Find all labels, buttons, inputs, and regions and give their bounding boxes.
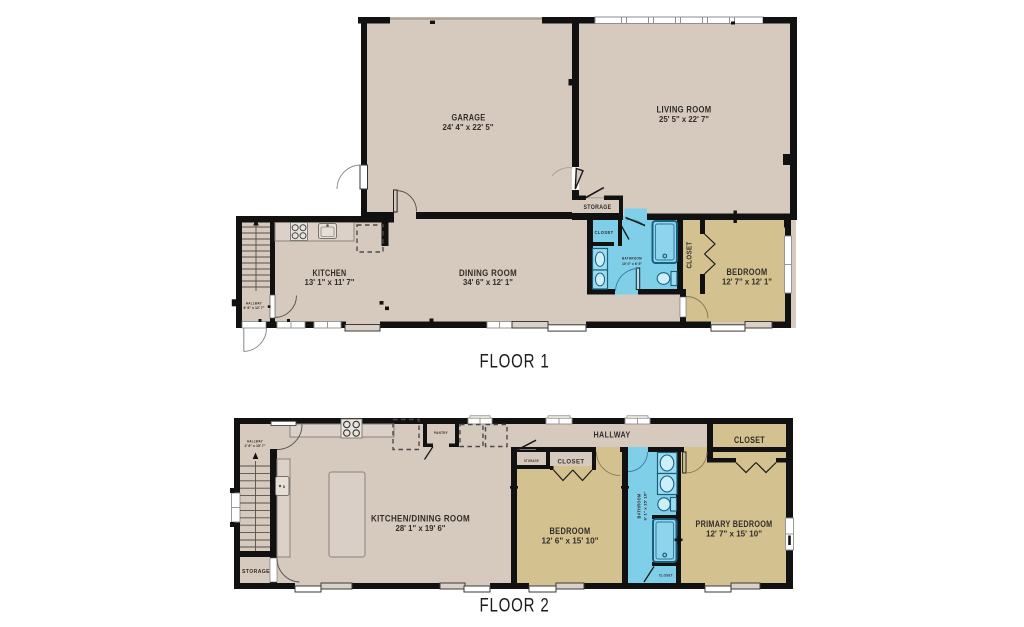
svg-text:6' 1" x 15' 10": 6' 1" x 15' 10" xyxy=(643,491,648,520)
svg-text:PRIMARY BEDROOM: PRIMARY BEDROOM xyxy=(696,519,773,530)
svg-text:DINING ROOM: DINING ROOM xyxy=(459,268,517,278)
svg-text:HALLWAY: HALLWAY xyxy=(594,431,631,440)
svg-text:STORAGE: STORAGE xyxy=(584,204,612,211)
svg-text:34' 6" x 12' 1": 34' 6" x 12' 1" xyxy=(463,278,513,287)
svg-text:25' 5" x 22' 7": 25' 5" x 22' 7" xyxy=(659,115,709,124)
svg-text:13' 1" x 11' 7": 13' 1" x 11' 7" xyxy=(305,278,355,287)
svg-text:HALLWAY: HALLWAY xyxy=(246,302,262,306)
svg-text:LIVING ROOM: LIVING ROOM xyxy=(657,105,712,116)
svg-text:HALLWAY: HALLWAY xyxy=(247,440,263,444)
svg-text:PANTRY: PANTRY xyxy=(434,431,448,435)
svg-text:2' 6" x 15' 7": 2' 6" x 15' 7" xyxy=(245,444,266,448)
svg-text:10' 0" x 6' 5": 10' 0" x 6' 5" xyxy=(622,262,642,266)
svg-text:24' 4" x 22' 5": 24' 4" x 22' 5" xyxy=(443,123,494,132)
svg-text:6' 6" x 12' 7": 6' 6" x 12' 7" xyxy=(244,306,265,310)
svg-text:FLOOR 1: FLOOR 1 xyxy=(480,352,550,373)
svg-text:BEDROOM: BEDROOM xyxy=(727,267,768,277)
svg-text:CLOSET: CLOSET xyxy=(558,460,585,466)
svg-text:12' 7" x 15' 10": 12' 7" x 15' 10" xyxy=(706,530,762,539)
svg-text:KITCHEN/DINING ROOM: KITCHEN/DINING ROOM xyxy=(371,514,470,525)
svg-text:CLOSET: CLOSET xyxy=(734,435,765,446)
svg-text:28' 1" x 19' 6": 28' 1" x 19' 6" xyxy=(396,524,446,533)
svg-text:12' 7" x 12' 1": 12' 7" x 12' 1" xyxy=(722,278,772,287)
svg-text:STORAGE: STORAGE xyxy=(524,459,539,463)
svg-text:CLOSET: CLOSET xyxy=(685,241,694,268)
svg-text:BEDROOM: BEDROOM xyxy=(550,526,591,536)
svg-text:CLOSET: CLOSET xyxy=(595,230,614,235)
svg-text:CLOSET: CLOSET xyxy=(659,574,673,578)
svg-text:KITCHEN: KITCHEN xyxy=(313,268,347,278)
svg-text:BATHROOM: BATHROOM xyxy=(622,256,642,261)
svg-text:STORAGE: STORAGE xyxy=(242,569,270,575)
svg-text:FLOOR 2: FLOOR 2 xyxy=(480,596,550,617)
svg-text:12' 6" x 15' 10": 12' 6" x 15' 10" xyxy=(542,537,599,546)
svg-text:GARAGE: GARAGE xyxy=(452,113,486,124)
